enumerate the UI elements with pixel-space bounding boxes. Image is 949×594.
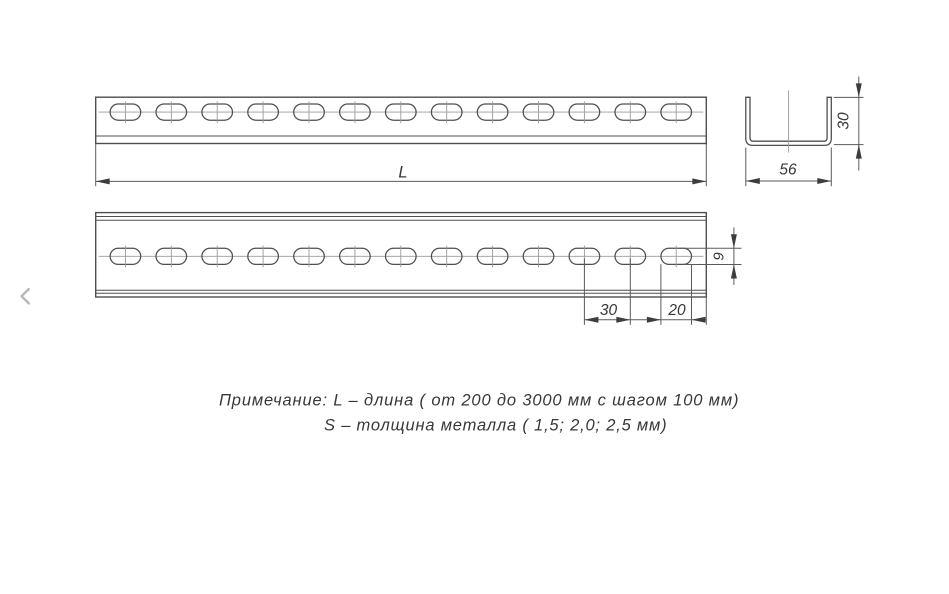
svg-text:30: 30: [836, 112, 853, 130]
svg-text:30: 30: [600, 302, 618, 319]
svg-text:S – толщина металла ( 1,5;: S – толщина металла ( 1,5; 2,0; 2,5 мм): [324, 417, 667, 435]
svg-text:Примечание: L – длина ( от: Примечание: L – длина ( от 200 до 3000 м…: [219, 392, 739, 410]
svg-text:L: L: [398, 164, 407, 182]
svg-text:56: 56: [779, 162, 797, 179]
svg-text:9: 9: [711, 252, 728, 261]
svg-text:20: 20: [667, 302, 686, 319]
